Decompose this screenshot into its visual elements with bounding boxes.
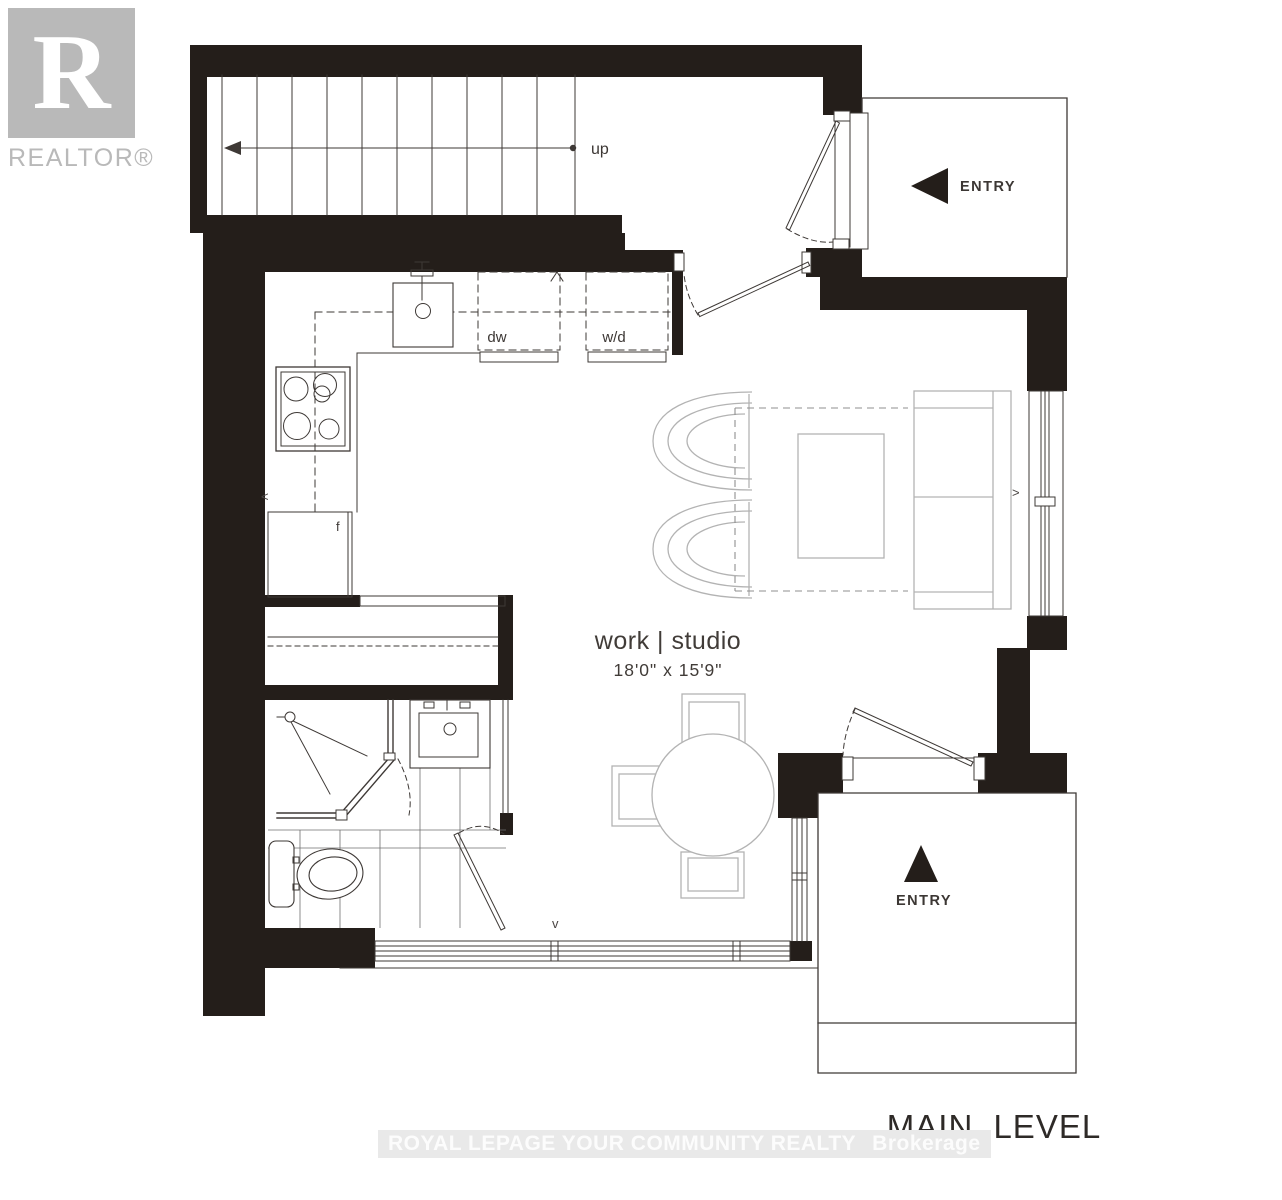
entry-label-bottom: ENTRY: [896, 893, 952, 909]
sofa: [914, 391, 1011, 609]
window-bottom: v: [340, 916, 818, 968]
dining-set: [612, 694, 774, 898]
living-area: [653, 391, 1011, 609]
bathroom-sink: [410, 700, 490, 768]
bathroom: [268, 700, 508, 930]
floor-plan-drawing: up ENTRY: [0, 0, 1282, 1200]
fridge: f: [268, 512, 352, 597]
stairs: up: [222, 75, 609, 215]
bathroom-tiles: [268, 768, 506, 928]
dishwasher-label: dw: [487, 329, 506, 346]
stairs-up-label: up: [591, 141, 609, 158]
entry-label-top: ENTRY: [960, 179, 1016, 195]
fridge-label: f: [336, 519, 340, 534]
washer-dryer-label: w/d: [601, 329, 625, 346]
entry-arrow-top: [911, 168, 948, 204]
interior-entry-door: [674, 252, 811, 317]
realtor-logo: R REALTOR®: [8, 8, 158, 173]
room-label: work | studio 18'0" x 15'9": [594, 627, 741, 680]
kitchen-sink: [393, 262, 453, 347]
watermark-text: ROYAL LEPAGE YOUR COMMUNITY REALTY: [388, 1132, 856, 1156]
area-rug: [735, 408, 908, 591]
armchair-1: [653, 392, 752, 490]
room-name: work | studio: [594, 627, 741, 655]
entry-arrow-bottom: [904, 845, 938, 882]
floor-plan-page: up ENTRY: [0, 0, 1282, 1200]
chair-bottom: [681, 852, 744, 898]
brokerage-watermark: ROYAL LEPAGE YOUR COMMUNITY REALTY Broke…: [378, 1130, 991, 1158]
realtor-logo-name: REALTOR®: [8, 144, 158, 173]
room-dimensions: 18'0" x 15'9": [614, 660, 723, 680]
shower: [277, 700, 410, 820]
entry-door-bottom: [843, 708, 973, 766]
window-side-vertical: [792, 818, 807, 941]
window-right: >: [1012, 391, 1063, 616]
realtor-logo-icon: R: [8, 8, 135, 138]
entry-door-top: [786, 121, 840, 242]
stairs-direction-arrow: [224, 141, 576, 155]
left-wall-marker: <: [261, 489, 269, 504]
toilet: [269, 841, 365, 907]
realtor-logo-letter: R: [33, 19, 111, 127]
round-table: [652, 734, 774, 856]
armchair-2: [653, 500, 752, 598]
kitchen: f dw w/d <: [261, 262, 672, 597]
right-window-marker: >: [1012, 485, 1020, 500]
coffee-table: [798, 434, 884, 558]
bottom-window-marker: v: [552, 916, 559, 931]
watermark-suffix: Brokerage: [872, 1132, 980, 1156]
cooktop: [276, 367, 350, 451]
